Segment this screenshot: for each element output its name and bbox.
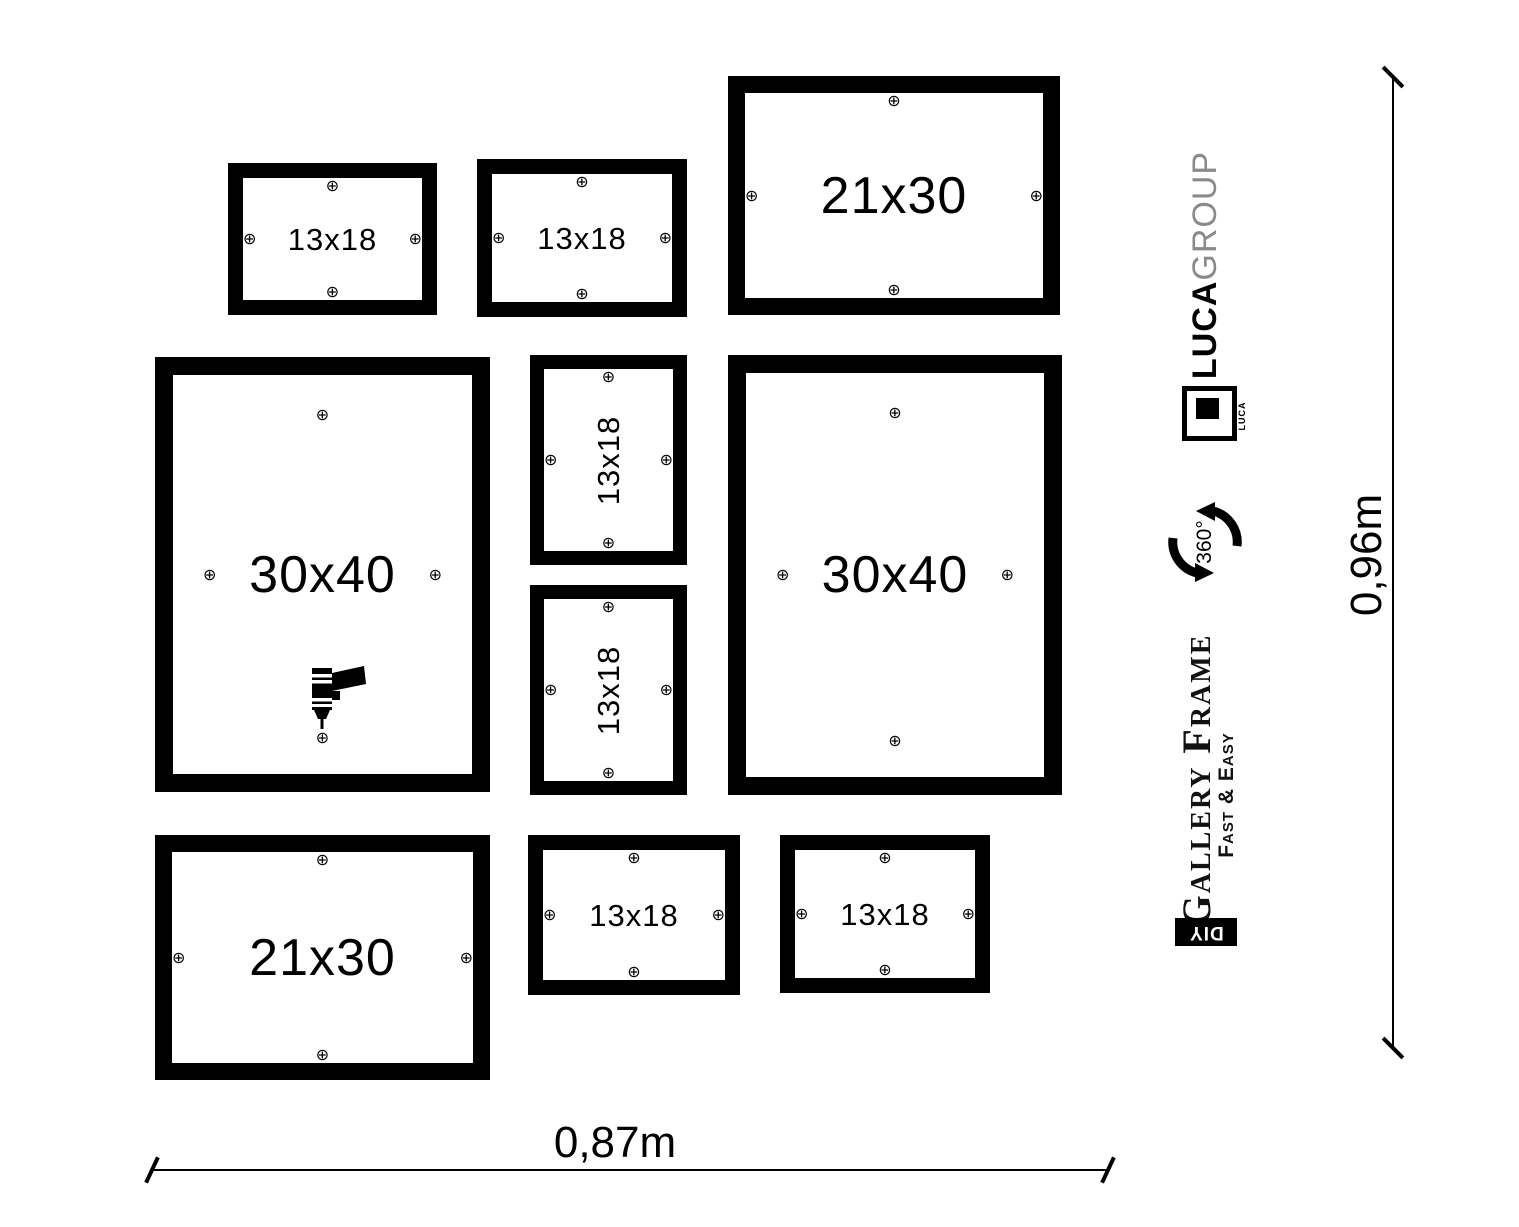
- frame-13x18-top-left: ⊕ ⊕ ⊕ ⊕ 13x18: [228, 163, 437, 315]
- screw-icon: ⊕: [316, 852, 329, 868]
- luca-logo-icon: [1182, 386, 1237, 441]
- frame-size-label: 21x30: [249, 932, 396, 984]
- screw-icon: ⊕: [602, 765, 615, 781]
- screw-icon: ⊕: [575, 174, 588, 190]
- brand-wordmark: LUCAGROUP: [1183, 165, 1227, 365]
- screw-icon: ⊕: [627, 964, 640, 980]
- screw-icon: ⊕: [602, 535, 615, 551]
- screw-icon: ⊕: [1030, 188, 1043, 204]
- screw-icon: ⊕: [660, 682, 673, 698]
- screw-icon: ⊕: [316, 407, 329, 423]
- screw-icon: ⊕: [660, 452, 673, 468]
- luca-logo-label: LUCA: [1236, 394, 1248, 438]
- screw-icon: ⊕: [544, 682, 557, 698]
- screw-icon: ⊕: [962, 906, 975, 922]
- screw-icon: ⊕: [712, 907, 725, 923]
- screw-icon: ⊕: [745, 188, 758, 204]
- screw-icon: ⊕: [460, 950, 473, 966]
- frame-13x18-middle-lower: ⊕ ⊕ ⊕ ⊕ 13x18: [530, 585, 687, 795]
- screw-icon: ⊕: [243, 231, 256, 247]
- screw-icon: ⊕: [492, 230, 505, 246]
- screw-icon: ⊕: [543, 907, 556, 923]
- screw-icon: ⊕: [326, 178, 339, 194]
- screw-icon: ⊕: [203, 567, 216, 583]
- width-dimension-label: 0,87m: [515, 1121, 715, 1165]
- frame-size-label: 13x18: [589, 900, 678, 931]
- frame-13x18-middle-upper: ⊕ ⊕ ⊕ ⊕ 13x18: [530, 355, 687, 565]
- screw-icon: ⊕: [602, 369, 615, 385]
- frame-size-label: 13x18: [288, 224, 377, 255]
- width-dimension-line: [150, 1169, 1108, 1171]
- frame-size-label: 30x40: [249, 549, 396, 601]
- screw-icon: ⊕: [878, 850, 891, 866]
- screw-icon: ⊕: [544, 452, 557, 468]
- luca-logo-inner-square: [1196, 398, 1219, 419]
- frame-30x40-middle-right: ⊕ ⊕ ⊕ ⊕ 30x40: [728, 355, 1062, 795]
- frame-13x18-top-middle: ⊕ ⊕ ⊕ ⊕ 13x18: [477, 159, 687, 317]
- screw-icon: ⊕: [172, 950, 185, 966]
- frame-size-label: 30x40: [822, 549, 969, 601]
- frame-size-label: 21x30: [821, 170, 968, 222]
- height-dimension-label: 0,96m: [1343, 460, 1391, 650]
- brand-name: LUCA: [1188, 281, 1222, 379]
- frame-21x30-top-right: ⊕ ⊕ ⊕ ⊕ 21x30: [728, 76, 1060, 315]
- screw-icon: ⊕: [659, 230, 672, 246]
- drill-icon: [307, 661, 367, 731]
- rotation-360-label: 360°: [1163, 500, 1247, 584]
- screw-icon: ⊕: [316, 1047, 329, 1063]
- screw-icon: ⊕: [887, 282, 900, 298]
- diy-badge: DIY: [1175, 918, 1237, 946]
- screw-icon: ⊕: [888, 405, 901, 421]
- frame-13x18-bottom-middle: ⊕ ⊕ ⊕ ⊕ 13x18: [528, 835, 740, 995]
- screw-icon: ⊕: [1001, 567, 1014, 583]
- screw-icon: ⊕: [776, 567, 789, 583]
- frame-size-label: 13x18: [840, 899, 929, 930]
- brand-suffix: GROUP: [1188, 151, 1222, 281]
- screw-icon: ⊕: [326, 284, 339, 300]
- frame-21x30-bottom-left: ⊕ ⊕ ⊕ ⊕ 21x30: [155, 835, 490, 1080]
- gallery-frame-layout-diagram: ⊕ ⊕ ⊕ ⊕ 13x18 ⊕ ⊕ ⊕ ⊕ 13x18 ⊕ ⊕ ⊕ ⊕ 21x3…: [0, 0, 1519, 1227]
- frame-30x40-middle-left: ⊕ ⊕ ⊕ ⊕ 30x40: [155, 357, 490, 792]
- product-tagline: Fast & Easy: [1213, 720, 1239, 870]
- frame-size-label: 13x18: [593, 415, 624, 504]
- screw-icon: ⊕: [316, 730, 329, 746]
- screw-icon: ⊕: [878, 962, 891, 978]
- diy-label: DIY: [1189, 923, 1224, 942]
- screw-icon: ⊕: [429, 567, 442, 583]
- frame-size-label: 13x18: [593, 645, 624, 734]
- screw-icon: ⊕: [888, 733, 901, 749]
- screw-icon: ⊕: [575, 286, 588, 302]
- frame-size-label: 13x18: [537, 223, 626, 254]
- screw-icon: ⊕: [627, 850, 640, 866]
- screw-icon: ⊕: [602, 599, 615, 615]
- frame-13x18-bottom-right: ⊕ ⊕ ⊕ ⊕ 13x18: [780, 835, 990, 993]
- screw-icon: ⊕: [795, 906, 808, 922]
- rotation-360-icon: 360°: [1163, 500, 1247, 584]
- screw-icon: ⊕: [887, 93, 900, 109]
- screw-icon: ⊕: [409, 231, 422, 247]
- height-dimension-line: [1392, 75, 1394, 1050]
